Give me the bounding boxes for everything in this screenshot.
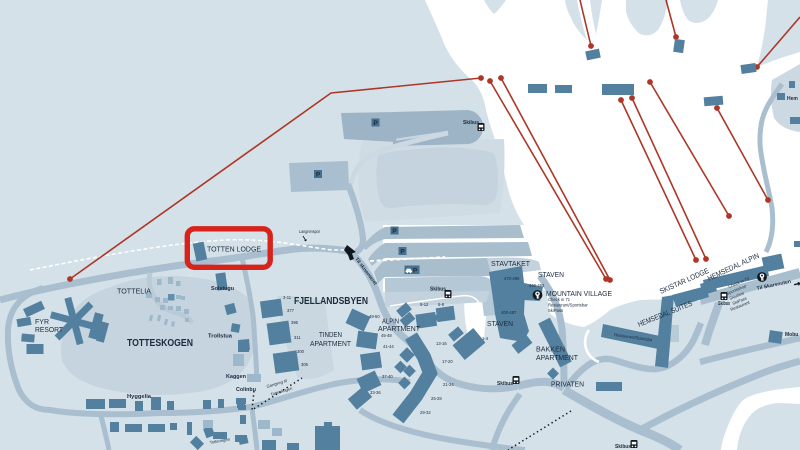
svg-text:STAVEN: STAVEN	[538, 270, 564, 279]
svg-text:311: 311	[294, 335, 301, 340]
svg-text:Skibus: Skibus	[497, 381, 513, 387]
svg-text:29-32: 29-32	[420, 410, 431, 415]
svg-text:9-12: 9-12	[420, 302, 429, 307]
svg-text:Skibus: Skibus	[615, 444, 631, 450]
svg-text:41-44: 41-44	[383, 344, 394, 349]
svg-text:377: 377	[287, 308, 295, 313]
svg-text:TOTTEN LODGE: TOTTEN LODGE	[207, 244, 261, 253]
svg-text:P: P	[400, 249, 405, 256]
svg-text:37-40: 37-40	[382, 374, 393, 379]
svg-text:P: P	[373, 120, 378, 127]
svg-text:Skibus: Skibus	[718, 301, 730, 307]
svg-text:440-463: 440-463	[529, 283, 545, 288]
svg-text:Check in 71: Check in 71	[548, 297, 571, 302]
svg-text:25-28: 25-28	[431, 396, 442, 401]
svg-text:STAVTAKET: STAVTAKET	[491, 259, 530, 268]
svg-text:APARTMENT: APARTMENT	[536, 353, 578, 362]
svg-text:300: 300	[297, 349, 305, 354]
svg-text:Skibus: Skibus	[430, 287, 446, 293]
svg-text:P: P	[392, 228, 397, 235]
svg-text:33-36: 33-36	[370, 390, 381, 395]
svg-text:SkiPass: SkiPass	[548, 308, 563, 313]
svg-text:APARTMENT: APARTMENT	[378, 324, 420, 333]
svg-text:TOTTESKOGEN: TOTTESKOGEN	[127, 337, 193, 349]
svg-text:Restaurant/Sportsbar: Restaurant/Sportsbar	[548, 303, 588, 308]
svg-text:17-20: 17-20	[442, 359, 453, 364]
svg-text:PRIVATEN: PRIVATEN	[551, 380, 584, 389]
svg-text:49-50: 49-50	[369, 314, 380, 319]
svg-text:Hem: Hem	[787, 96, 798, 102]
svg-text:TINDEN: TINDEN	[319, 330, 342, 339]
svg-text:Trollstua: Trollstua	[208, 334, 232, 340]
svg-text:TOTTELIA: TOTTELIA	[117, 287, 151, 296]
svg-text:305: 305	[301, 362, 309, 367]
svg-text:Hyggelia: Hyggelia	[127, 394, 151, 400]
svg-text:396: 396	[291, 320, 299, 325]
svg-text:Colinbu: Colinbu	[236, 387, 256, 393]
svg-text:Kaggen: Kaggen	[226, 374, 246, 380]
svg-text:21-24: 21-24	[443, 382, 454, 387]
svg-text:RESORT: RESORT	[35, 325, 63, 334]
svg-text:STAVEN: STAVEN	[487, 319, 513, 328]
svg-text:400-487: 400-487	[501, 310, 517, 315]
svg-text:Langrenspor: Langrenspor	[299, 229, 321, 234]
svg-text:1-4: 1-4	[482, 336, 489, 341]
svg-text:45-48: 45-48	[381, 333, 392, 338]
svg-text:Skibus: Skibus	[463, 120, 479, 126]
svg-text:Mobu: Mobu	[785, 332, 798, 338]
svg-text:FJELLANDSBYEN: FJELLANDSBYEN	[294, 295, 368, 307]
svg-text:Solstugu: Solstugu	[211, 286, 234, 292]
svg-text:P: P	[413, 267, 418, 274]
svg-text:470-499: 470-499	[504, 276, 520, 281]
svg-text:3-11: 3-11	[283, 295, 292, 300]
svg-text:5-8: 5-8	[438, 302, 445, 307]
svg-text:13-16: 13-16	[436, 341, 447, 346]
svg-text:APARTMENT: APARTMENT	[310, 339, 351, 348]
svg-text:P: P	[316, 172, 321, 179]
